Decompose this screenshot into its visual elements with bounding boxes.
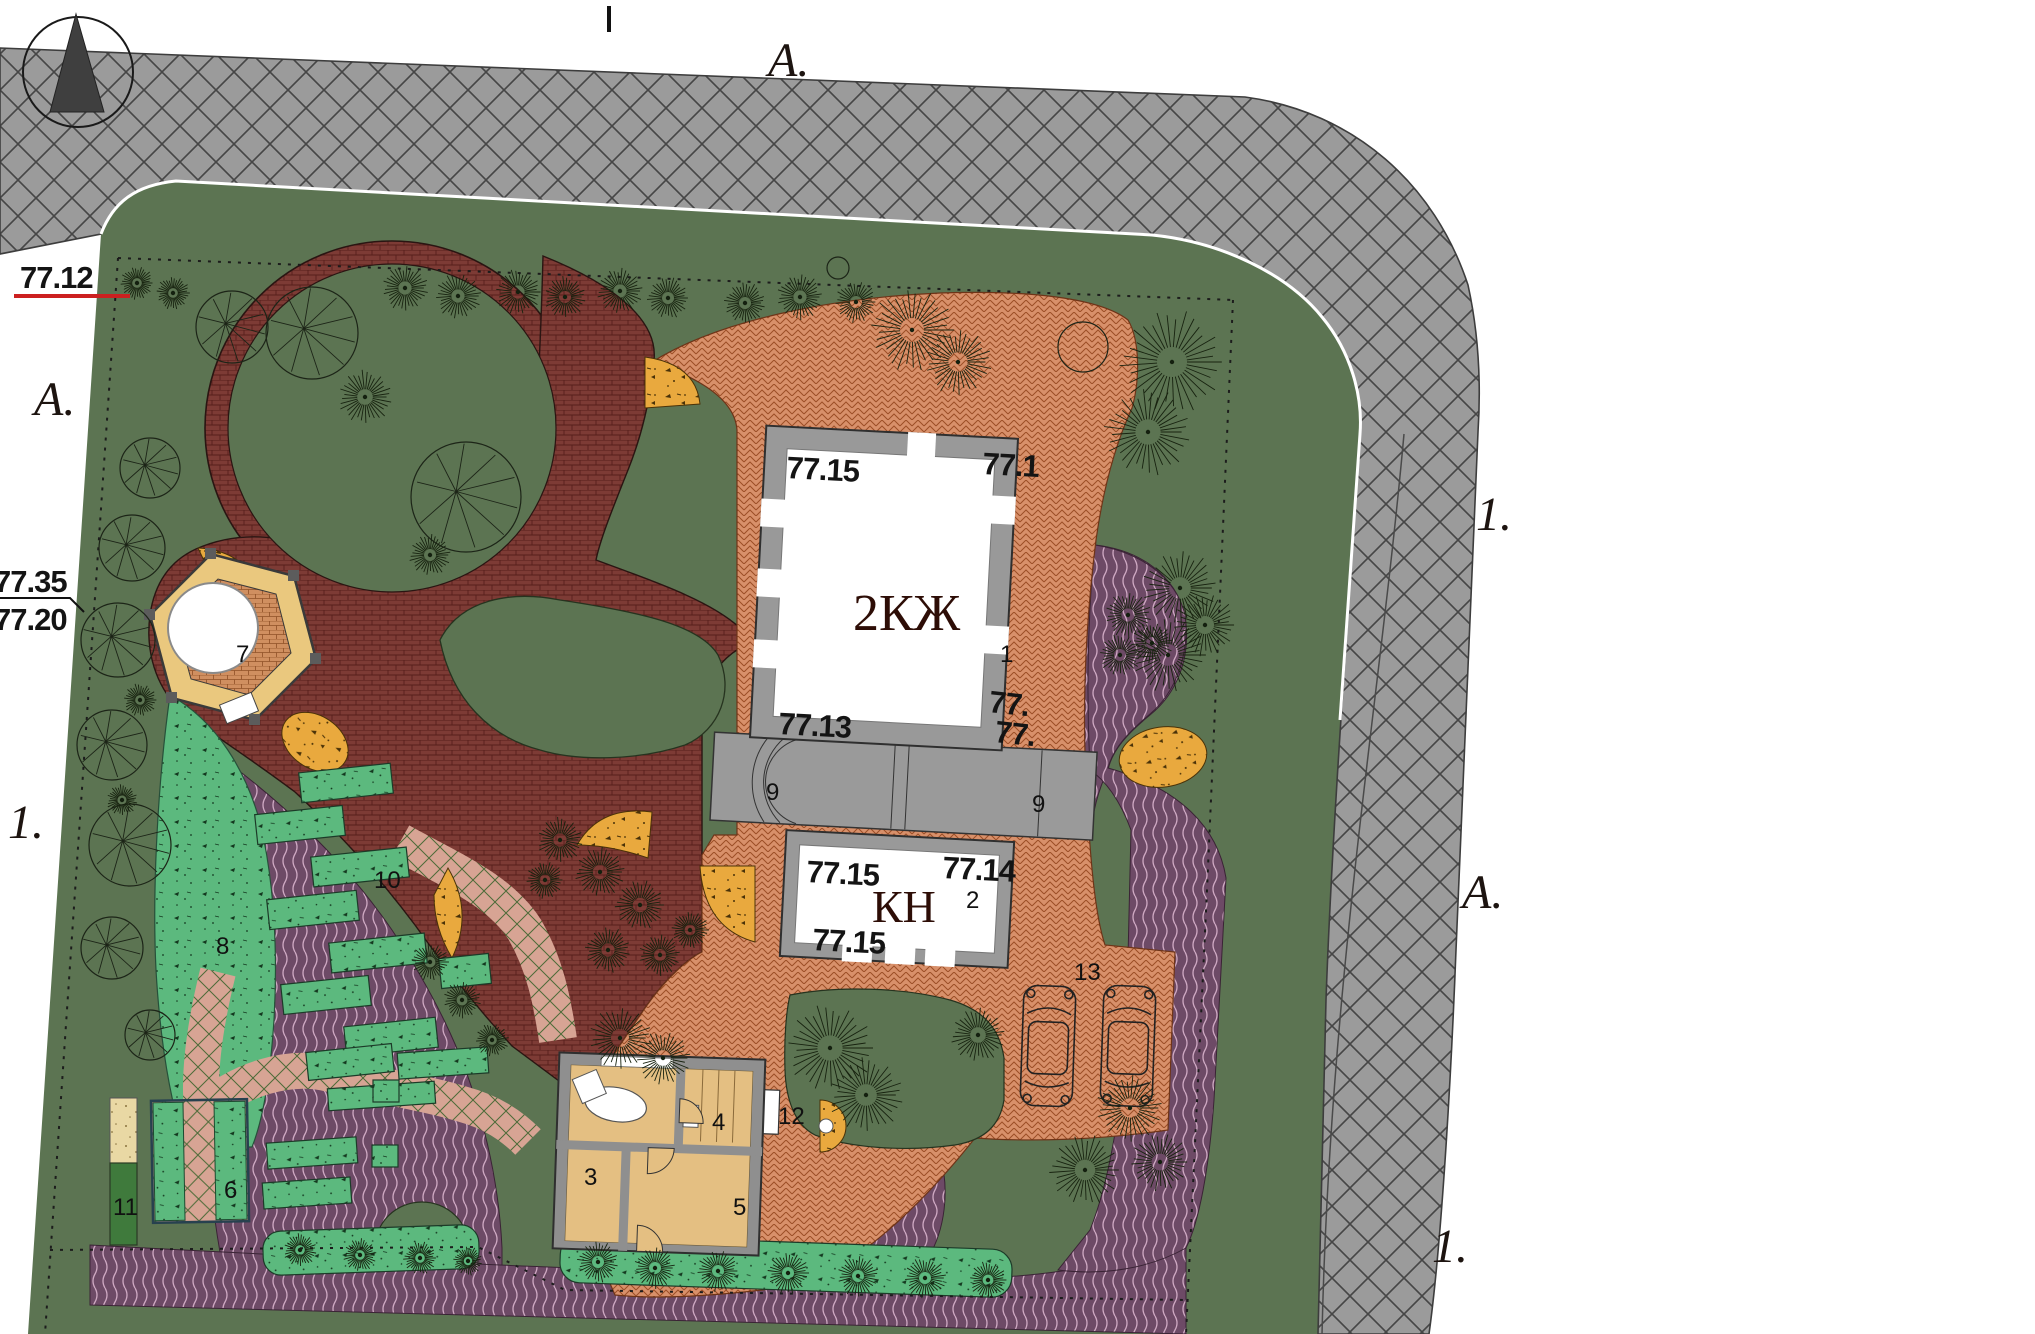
plan-number-label: 4: [712, 1109, 725, 1136]
plan-number-label: 3: [584, 1164, 597, 1191]
plan-number-label: 9: [766, 779, 779, 806]
plan-number-label: 5: [733, 1194, 746, 1221]
svg-text:77.15: 77.15: [786, 450, 861, 489]
garage-name: КН: [872, 881, 936, 932]
svg-text:77.15: 77.15: [812, 922, 887, 961]
site-plan-drawing: 2КЖ 77.15 77.1 77.13 77. 77. КН 77.15 77…: [0, 0, 2035, 1334]
axis-label: 1.: [1432, 1220, 1468, 1273]
elevation-label: 77.35: [0, 564, 67, 599]
axis-label: А.: [31, 373, 75, 426]
plan-number-label: 12: [778, 1103, 805, 1130]
axis-label: 1.: [1476, 488, 1512, 541]
garden-bed: [397, 1047, 489, 1079]
site-plan-page: 2КЖ 77.15 77.1 77.13 77. 77. КН 77.15 77…: [0, 0, 2035, 1334]
svg-text:77.15: 77.15: [806, 854, 881, 893]
sand-box: [110, 1098, 137, 1163]
plan-number-label: 10: [374, 867, 401, 894]
svg-text:77.13: 77.13: [778, 706, 853, 745]
svg-text:77.1: 77.1: [982, 446, 1041, 484]
axis-label: А.: [765, 34, 809, 87]
plan-number-label: 2: [966, 887, 979, 914]
garden-bed: [373, 1080, 399, 1102]
plan-number-label: 8: [216, 933, 229, 960]
house-name: 2КЖ: [853, 585, 961, 642]
plan-number-label: 1: [1000, 641, 1013, 668]
garden-bed: [372, 1145, 398, 1167]
garden-bed: [262, 1177, 352, 1209]
garden-bed: [266, 1137, 358, 1169]
plan-number-label: 11: [113, 1194, 138, 1221]
plan-number-label: 6: [224, 1177, 237, 1204]
elevation-label: 77.20: [0, 602, 67, 637]
svg-text:77.14: 77.14: [942, 850, 1018, 889]
axis-label: А.: [1459, 866, 1503, 919]
garden-bed: [439, 953, 492, 988]
lawn-circle: [228, 264, 556, 592]
plan-number-label: 7: [236, 641, 249, 668]
greenhouse: [151, 1099, 249, 1223]
svg-text:77.: 77.: [993, 714, 1037, 753]
elevation-label: 77.12: [20, 260, 93, 295]
plan-number-label: 13: [1074, 959, 1101, 986]
plan-number-label: 9: [1032, 791, 1045, 818]
axis-label: 1.: [8, 796, 44, 849]
